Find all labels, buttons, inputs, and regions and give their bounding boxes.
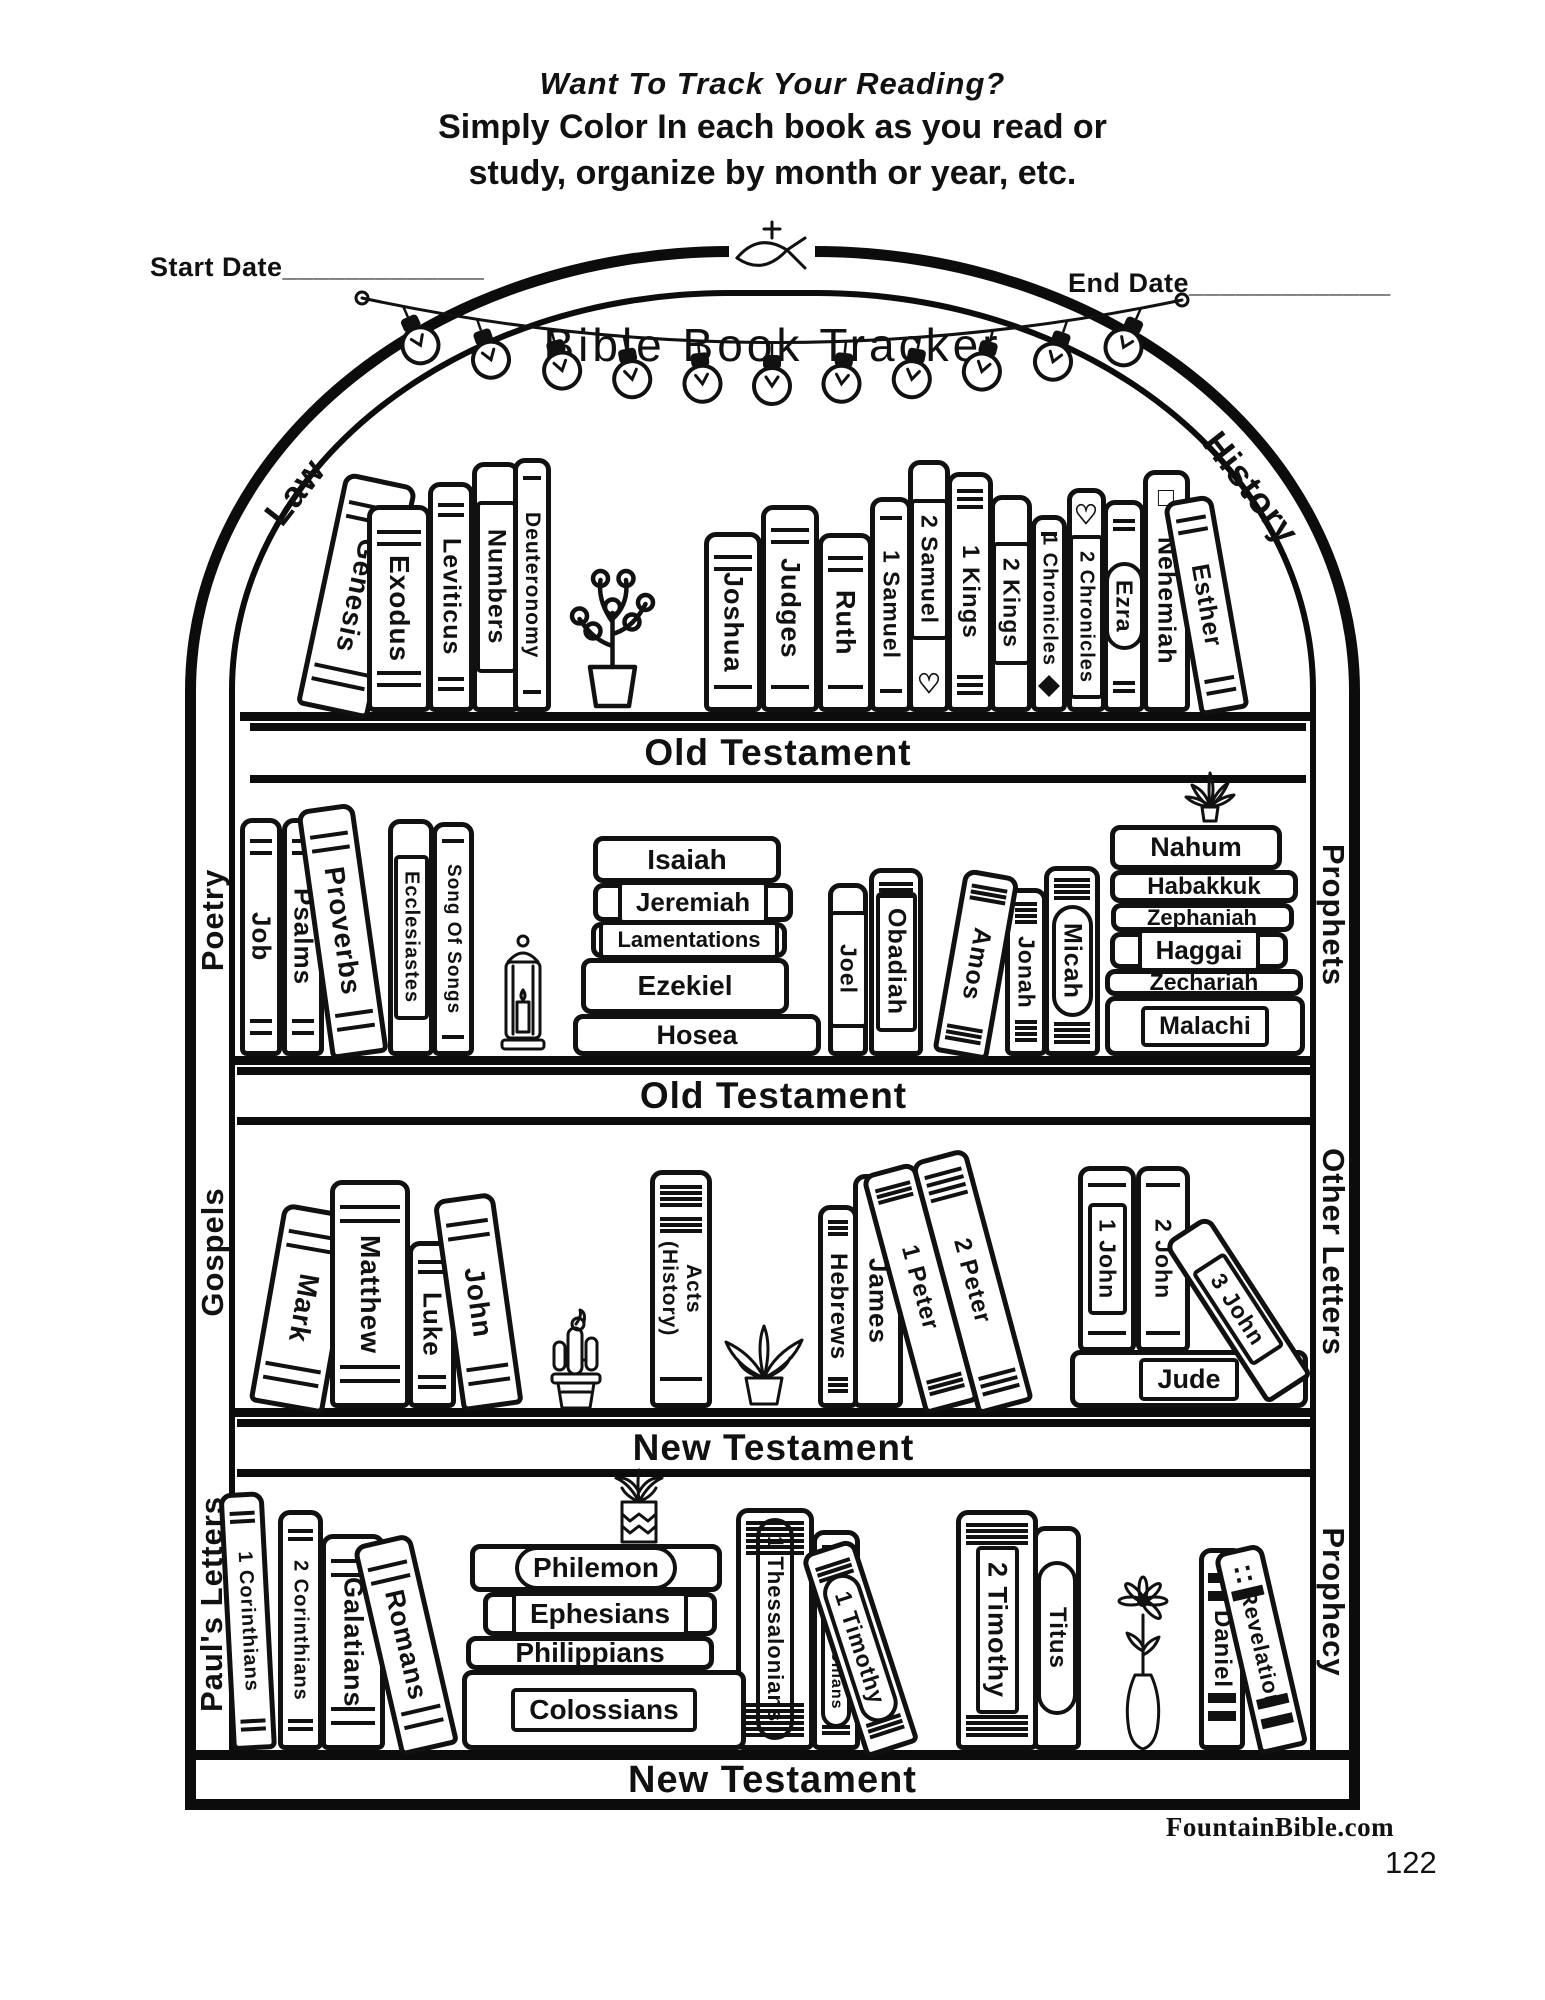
book-spine-label: Romans	[378, 1586, 434, 1703]
book-spine-label: 2 Timothy	[982, 1562, 1013, 1698]
book-spine-label: Hebrews	[824, 1253, 852, 1360]
book-spine-label: Numbers	[482, 529, 511, 644]
diamond-icon: ◆	[1039, 671, 1060, 698]
book-spine-label: 1 Samuel	[878, 550, 905, 659]
book-2-kings[interactable]: 2 Kings	[990, 495, 1032, 712]
book-2-timothy[interactable]: 2 Timothy	[956, 1510, 1038, 1750]
book-song-of-songs[interactable]: Song Of Songs	[432, 822, 474, 1056]
book-haggai[interactable]: Haggai	[1110, 932, 1288, 969]
book-spine-label: Colossians	[529, 1694, 678, 1726]
book-spine-label: 1 Chronicles	[1038, 534, 1061, 666]
book-obadiah[interactable]: Obadiah	[869, 868, 923, 1056]
book-1-thessalonians[interactable]: 1 Thessalonians	[736, 1508, 814, 1750]
book-spine-label: Philippians	[515, 1637, 664, 1669]
book-zephaniah[interactable]: Zephaniah	[1111, 903, 1294, 932]
page-number: 122	[1385, 1845, 1437, 1881]
book-jeremiah[interactable]: Jeremiah	[593, 883, 793, 922]
book-lamentations[interactable]: Lamentations	[591, 922, 787, 958]
book-spine-label: Luke	[417, 1292, 448, 1357]
heart-icon: ♡	[1074, 502, 1098, 529]
book-spine-label: Zechariah	[1150, 969, 1259, 996]
book-spine-label: 1 Corinthians	[232, 1550, 262, 1692]
book-hebrews[interactable]: Hebrews	[818, 1205, 858, 1408]
book-ezekiel[interactable]: Ezekiel	[581, 958, 789, 1014]
book-spine-label: Exodus	[383, 555, 415, 662]
book-spine-label: Isaiah	[647, 844, 726, 876]
book-micah[interactable]: Micah	[1044, 866, 1100, 1056]
book-spine-label: Job	[246, 912, 277, 961]
book-spine-label: Ruth	[830, 590, 861, 655]
book-joel[interactable]: Joel	[828, 883, 868, 1056]
book-spine-label: Hosea	[656, 1020, 737, 1051]
book-spine-label: 1 Kings	[956, 545, 984, 639]
book-spine-label: Judges	[775, 558, 806, 659]
book-philippians[interactable]: Philippians	[466, 1636, 714, 1670]
book-spine-label: Mark	[282, 1272, 326, 1346]
book-spine-label: Ezekiel	[638, 970, 733, 1002]
book-spine-label: Esther	[1185, 561, 1228, 649]
book-spine-label: Deuteronomy	[520, 512, 544, 658]
book-spine-label: Acts(History)	[657, 1241, 705, 1336]
book-ruth[interactable]: Ruth	[818, 533, 873, 712]
book-spine-label: Lamentations	[617, 927, 760, 953]
book-zechariah[interactable]: Zechariah	[1105, 969, 1303, 996]
book-spine-label: Proverbs	[318, 865, 368, 998]
book-spine-label: Zephaniah	[1147, 905, 1257, 931]
book-leviticus[interactable]: Leviticus	[428, 482, 474, 712]
book-1-kings[interactable]: 1 Kings	[947, 472, 993, 712]
book-spine-label: Jeremiah	[636, 887, 750, 918]
book-spine-label: Song Of Songs	[442, 864, 464, 1014]
book-titus[interactable]: Titus	[1033, 1526, 1081, 1750]
book-judges[interactable]: Judges	[761, 505, 819, 712]
book-spine-label: 1 Thessalonians	[762, 1536, 788, 1722]
books-layer: GenesisExodusLeviticusNumbersDeuteronomy…	[0, 0, 1545, 2000]
book-spine-label: Obadiah	[882, 908, 911, 1015]
book-spine-label: 1 Peter	[895, 1243, 945, 1334]
book-spine-label: Joshua	[718, 572, 749, 673]
book-1-john[interactable]: 1 John	[1078, 1166, 1136, 1352]
book-spine-label: Jude	[1157, 1364, 1220, 1395]
book-spine-label: 2 Kings	[998, 558, 1025, 648]
book-spine-label: 1 John	[1094, 1219, 1121, 1299]
book-deuteronomy[interactable]: Deuteronomy	[513, 458, 551, 712]
book-habakkuk[interactable]: Habakkuk	[1110, 870, 1298, 903]
book-spine-label: John	[457, 1265, 499, 1340]
heart-icon: ♡	[917, 671, 941, 698]
book-spine-label: Ezra	[1111, 580, 1138, 633]
book-spine-label: Joel	[835, 944, 862, 994]
book-ezra[interactable]: Ezra	[1103, 500, 1145, 712]
book-joshua[interactable]: Joshua	[704, 532, 762, 712]
book-philemon[interactable]: Philemon	[470, 1544, 722, 1592]
book-spine-label: Leviticus	[437, 538, 466, 655]
book-1-corinthians[interactable]: 1 Corinthians	[218, 1491, 276, 1751]
book-2-chronicles[interactable]: 2 Chronicles♡	[1067, 488, 1106, 712]
book-spine-label: Nahum	[1150, 832, 1242, 863]
book-spine-label: Malachi	[1159, 1012, 1251, 1041]
book-spine-label: Matthew	[354, 1235, 386, 1354]
book-ecclesiastes[interactable]: Ecclesiastes	[388, 819, 434, 1056]
book-spine-label: Habakkuk	[1147, 873, 1260, 901]
book-spine-label: Philemon	[533, 1552, 659, 1584]
book-isaiah[interactable]: Isaiah	[593, 836, 781, 883]
book-nahum[interactable]: Nahum	[1110, 825, 1282, 870]
book-job[interactable]: Job	[240, 818, 282, 1056]
book-malachi[interactable]: Malachi	[1105, 996, 1305, 1056]
book-exodus[interactable]: Exodus	[367, 505, 431, 712]
book-spine-label: 2 Chronicles	[1075, 551, 1098, 683]
book-colossians[interactable]: Colossians	[462, 1670, 746, 1750]
book-spine-label: Micah	[1058, 923, 1087, 999]
book-2-samuel[interactable]: 2 Samuel♡	[908, 460, 950, 712]
dots-icon: ∷	[1232, 1560, 1255, 1590]
book-spine-label: Ephesians	[530, 1598, 670, 1630]
book-spine-label: 2 Samuel	[916, 515, 943, 624]
book-ephesians[interactable]: Ephesians	[483, 1592, 717, 1636]
book-spine-label: 3 John	[1205, 1269, 1271, 1351]
book-spine-label: Ecclesiastes	[400, 871, 423, 1003]
book-spine-label: Jonah	[1013, 936, 1040, 1009]
book-spine-label: Amos	[955, 926, 996, 1003]
book-2-corinthians[interactable]: 2 Corinthians	[278, 1510, 323, 1750]
book-spine-label: 2 Corinthians	[289, 1560, 312, 1701]
book-matthew[interactable]: Matthew	[330, 1180, 410, 1408]
book-spine-label: Haggai	[1156, 935, 1243, 966]
bible-book-tracker-page: Want To Track Your Reading? Simply Color…	[0, 0, 1545, 2000]
footer-site: FountainBible.com	[1160, 1812, 1400, 1843]
book-1-samuel[interactable]: 1 Samuel	[870, 497, 912, 712]
book-1-chronicles[interactable]: 1 Chronicles◆	[1031, 515, 1067, 712]
book-acts-history[interactable]: Acts(History)	[650, 1170, 712, 1408]
book-spine-label: Titus	[1043, 1607, 1071, 1669]
book-hosea[interactable]: Hosea	[573, 1014, 821, 1056]
